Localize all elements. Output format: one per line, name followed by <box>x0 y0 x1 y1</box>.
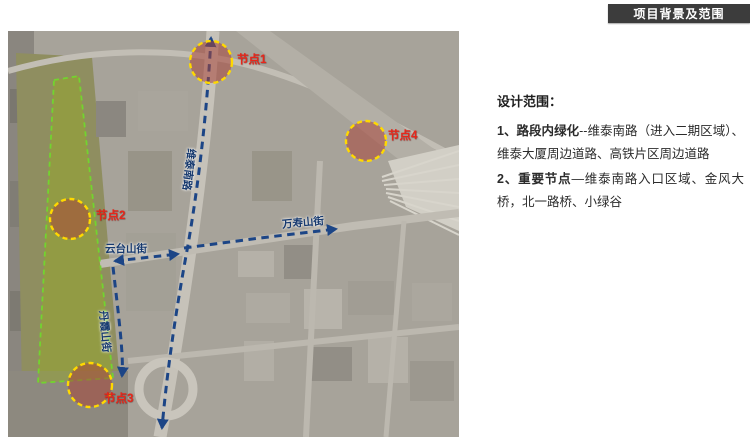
page-title-bar: 项目背景及范围 <box>608 4 750 23</box>
node-1-marker <box>190 41 232 83</box>
node-3-label: 节点3 <box>104 390 133 406</box>
design-scope-panel: 设计范围： 1、路段内绿化--维泰南路（进入二期区域）、维泰大厦周边道路、高铁片… <box>497 90 744 217</box>
panel-item-1-number: 1、 <box>497 124 517 138</box>
street-label-yuntaishan-street: 云台山街 <box>105 241 147 256</box>
panel-item-2-number: 2、 <box>497 172 518 186</box>
panel-item-1: 1、路段内绿化--维泰南路（进入二期区域）、维泰大厦周边道路、高铁片区周边道路 <box>497 120 744 166</box>
map-canvas <box>8 31 459 437</box>
satellite-map: 节点1 节点2 节点3 节点4 维泰南路 云台山街 万寿山街 丹霞山街 <box>8 31 459 437</box>
page-title: 项目背景及范围 <box>633 5 724 22</box>
panel-heading: 设计范围： <box>497 90 744 114</box>
node-2-label: 节点2 <box>96 207 125 223</box>
panel-item-2-keyword: 重要节点 <box>518 172 571 186</box>
node-4-marker <box>346 121 386 161</box>
node-4-label: 节点4 <box>388 127 417 143</box>
node-2-marker <box>50 199 90 239</box>
node-1-label: 节点1 <box>237 51 266 67</box>
panel-item-1-keyword: 路段内绿化 <box>517 124 580 138</box>
panel-item-2: 2、重要节点—维泰南路入口区域、金风大桥，北一路桥、小绿谷 <box>497 168 744 214</box>
